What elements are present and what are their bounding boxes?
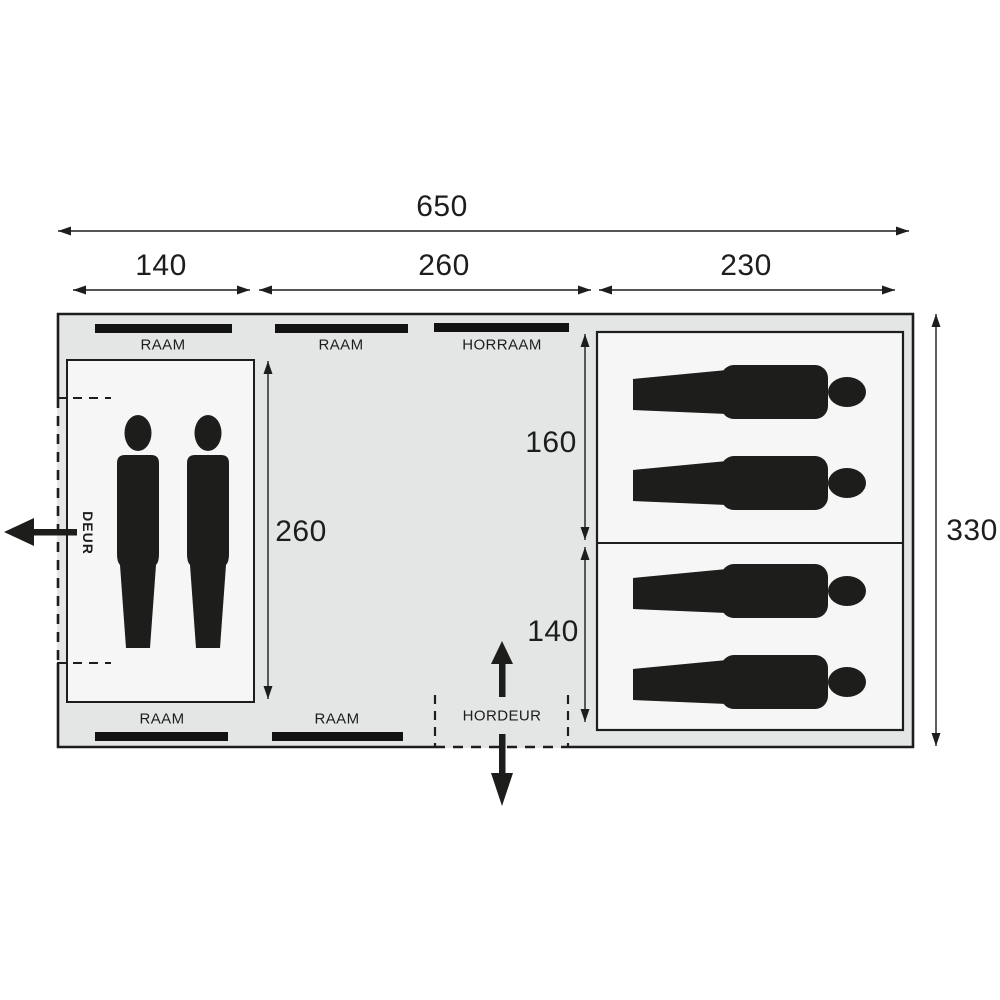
window-bar-top-left [95,324,232,333]
dim-label-160: 160 [525,428,577,458]
window-label-top-left: RAAM [141,338,186,353]
dim-label-260: 260 [418,251,470,281]
window-bar-bottom-middle [272,732,403,741]
window-label-bottom-middle: RAAM [315,712,360,727]
dim-label-230: 230 [720,251,772,281]
door-label: DEUR [81,511,95,555]
dim-label-650: 650 [416,192,468,222]
dim-label-330: 330 [946,516,998,546]
window-label-bottom-left: RAAM [140,712,185,727]
tent-floor-plan: 650 140 260 230 330 260 160 140 RAAM RAA… [0,0,1000,1000]
dim-label-140: 140 [135,251,187,281]
floor-plan-drawing [0,0,1000,1000]
mesh-window-bar [434,323,569,332]
mesh-door-label: HORDEUR [463,709,542,724]
window-bar-bottom-left [95,732,228,741]
dim-label-140-vertical: 140 [527,617,579,647]
mesh-window-label: HORRAAM [462,338,541,353]
window-bar-top-middle [275,324,408,333]
window-label-top-middle: RAAM [319,338,364,353]
dim-label-260-vertical: 260 [275,517,327,547]
